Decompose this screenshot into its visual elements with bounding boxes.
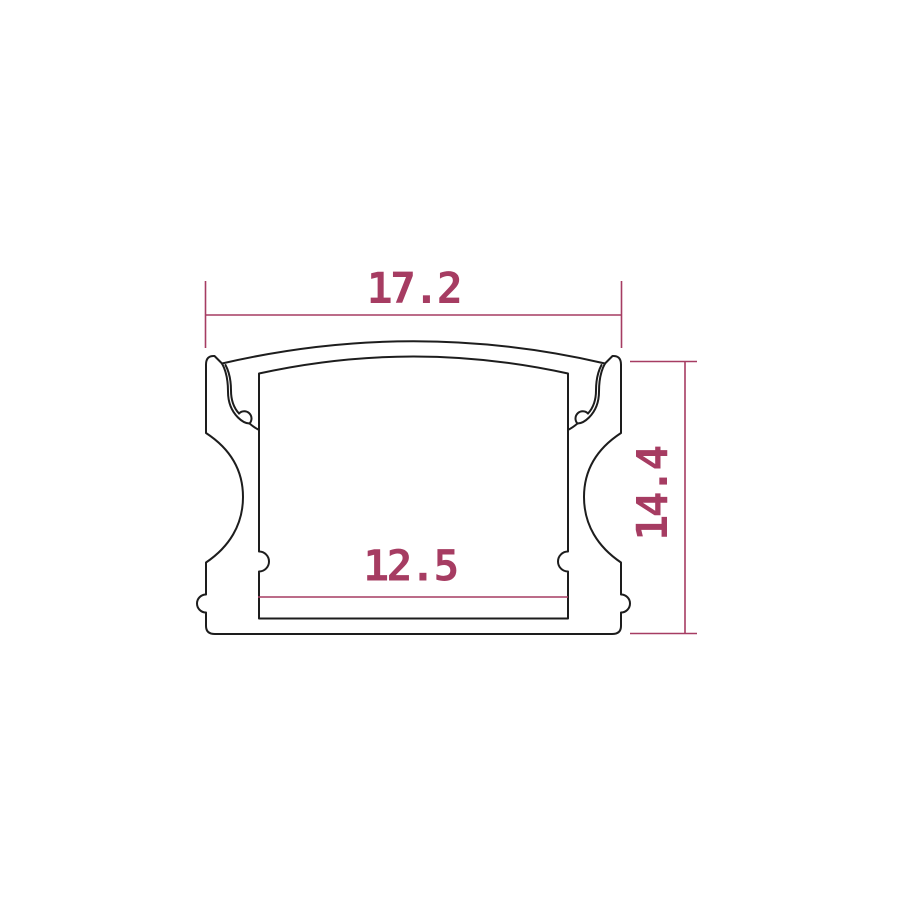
drawing-canvas: 17.2 14.4 12.5 [0, 0, 900, 900]
profile-top-arc-inner [259, 357, 568, 431]
profile-cross-section-drawing: 17.2 14.4 12.5 [0, 0, 900, 900]
inner-width-dimension: 12.5 [258, 542, 568, 598]
height-dimension: 14.4 [628, 362, 697, 634]
inner-width-dimension-label: 12.5 [363, 542, 457, 592]
profile-right-lip-outer [578, 364, 606, 424]
width-dimension-label: 17.2 [367, 264, 461, 314]
width-dimension: 17.2 [206, 264, 622, 348]
height-dimension-label: 14.4 [628, 447, 678, 541]
profile-left-lip-outer [222, 364, 250, 424]
profile-body-outline [197, 356, 630, 634]
profile-top-arc-outer [222, 341, 605, 363]
